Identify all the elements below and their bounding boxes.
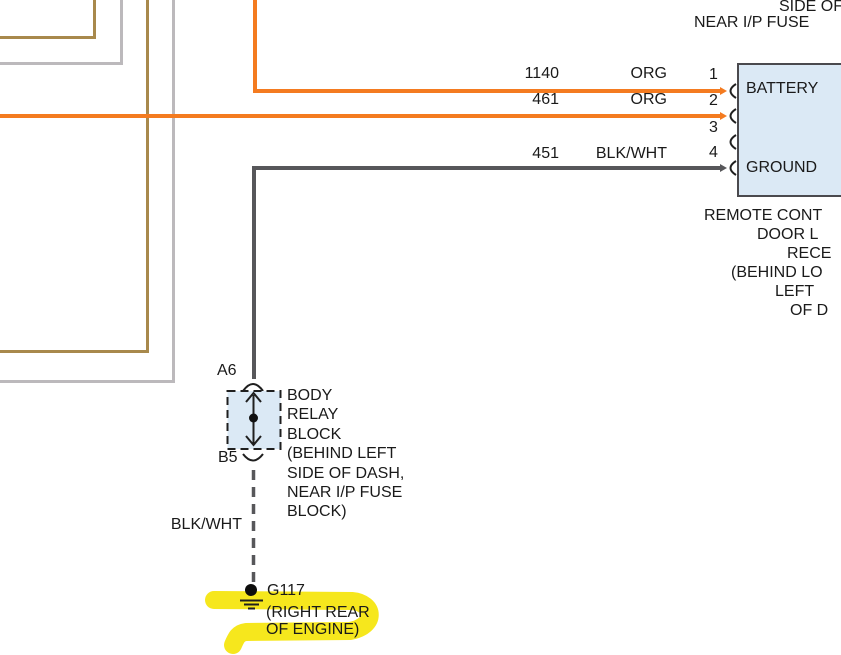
pin1-terminal-arc	[731, 84, 737, 98]
circuit-451-label: 451	[515, 145, 559, 162]
wirecolor-blkwht: BLK/WHT	[591, 145, 667, 162]
receiver-caption-line6: OF D	[790, 302, 828, 319]
wire-451-tip	[720, 164, 727, 172]
pin-a6-label: A6	[217, 362, 237, 379]
relay-junction-dot	[249, 414, 258, 423]
wire-461-tip	[720, 112, 727, 120]
top-note-line2: NEAR I/P FUSE	[694, 14, 809, 31]
pin-b5-label: B5	[218, 449, 238, 466]
ground-dot	[245, 584, 257, 596]
pin4-terminal-arc	[731, 161, 737, 175]
top-note-line1: SIDE OF	[779, 0, 841, 15]
brb-label-line: SIDE OF DASH,	[287, 464, 404, 483]
ground-id-label: G117	[267, 582, 305, 599]
pin-number-1: 1	[709, 66, 718, 83]
receiver-caption-line4: (BEHIND LO	[731, 264, 823, 281]
pin-number-2: 2	[709, 92, 718, 109]
receiver-caption-line1: REMOTE CONT	[704, 207, 822, 224]
wirecolor-org-2: ORG	[591, 91, 667, 108]
brb-label-line: NEAR I/P FUSE	[287, 483, 404, 502]
wirecolor-org-1: ORG	[591, 65, 667, 82]
wire-1140-tip	[720, 87, 727, 95]
brb-label-line: BLOCK)	[287, 502, 404, 521]
circuit-1140-label: 1140	[515, 65, 559, 82]
ground-location-line2: OF ENGINE)	[266, 621, 359, 638]
b5-terminal-arc	[243, 454, 263, 461]
brb-label-line: (BEHIND LEFT	[287, 444, 404, 463]
a6-terminal-arc	[243, 384, 263, 391]
ground-location-line1: (RIGHT REAR	[266, 604, 370, 621]
brb-label-line: RELAY	[287, 405, 404, 424]
receiver-caption-line2: DOOR L	[757, 226, 818, 243]
pin2-terminal-arc	[731, 109, 737, 123]
pin3-terminal-arc	[731, 135, 737, 149]
pin-number-4: 4	[709, 144, 718, 161]
brb-label-line: BLOCK	[287, 425, 404, 444]
body-relay-block-label: BODY RELAY BLOCK (BEHIND LEFT SIDE OF DA…	[287, 386, 404, 522]
circuit-461-label: 461	[515, 91, 559, 108]
wiring-diagram-canvas: BATTERY GROUND SIDE OF NEAR I/	[0, 0, 841, 655]
pin-number-3: 3	[709, 119, 718, 136]
ground-wire-color-label: BLK/WHT	[160, 516, 242, 533]
receiver-caption-line3: RECE	[787, 245, 831, 262]
brb-label-line: BODY	[287, 386, 404, 405]
receiver-caption-line5: LEFT	[775, 283, 814, 300]
